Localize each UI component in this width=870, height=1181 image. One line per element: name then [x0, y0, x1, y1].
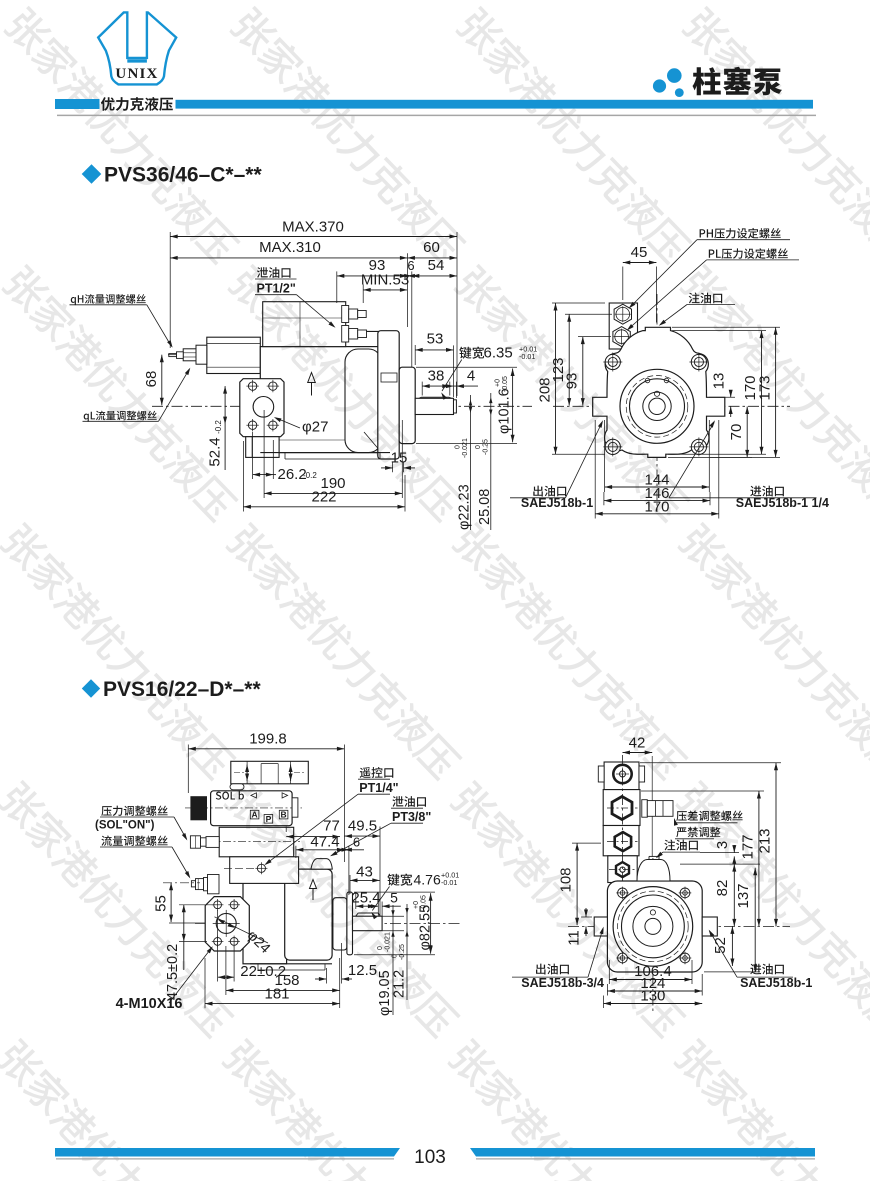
svg-text:+0: +0	[495, 379, 502, 387]
svg-text:PVS16/22–D*–**: PVS16/22–D*–**	[103, 678, 261, 701]
svg-text:70: 70	[728, 424, 745, 441]
svg-text:PT3/8": PT3/8"	[392, 810, 431, 824]
svg-text:PT1/4": PT1/4"	[359, 781, 398, 795]
svg-text:47.4: 47.4	[310, 834, 339, 851]
svg-text:-0.2: -0.2	[214, 420, 223, 434]
svg-text:82: 82	[714, 880, 731, 897]
svg-text:181: 181	[264, 986, 289, 1003]
svg-text:0: 0	[455, 445, 462, 449]
svg-text:-0.25: -0.25	[483, 439, 490, 455]
svg-text:φ22.23: φ22.23	[457, 484, 473, 530]
svg-text:103: 103	[414, 1147, 446, 1168]
svg-text:68: 68	[143, 371, 160, 388]
svg-text:MIN.53: MIN.53	[361, 272, 409, 289]
svg-text:-0.2: -0.2	[303, 471, 317, 480]
svg-text:137: 137	[735, 883, 752, 908]
svg-text:PVS36/46–C*–**: PVS36/46–C*–**	[104, 164, 262, 187]
svg-text:199.8: 199.8	[249, 731, 287, 748]
svg-text:(SOL"ON"): (SOL"ON")	[95, 820, 155, 832]
svg-text:55: 55	[153, 895, 170, 912]
svg-text:-0.01: -0.01	[441, 878, 457, 887]
svg-text:53: 53	[427, 331, 444, 348]
svg-text:25.08: 25.08	[477, 489, 493, 525]
svg-text:13: 13	[711, 373, 728, 390]
svg-text:UNIX: UNIX	[115, 66, 158, 82]
svg-text:MAX.370: MAX.370	[282, 219, 344, 236]
svg-text:49.5: 49.5	[348, 818, 377, 835]
svg-text:+0: +0	[413, 901, 420, 909]
svg-text:φ101.6: φ101.6	[497, 388, 513, 434]
svg-text:-0.021: -0.021	[462, 438, 469, 458]
svg-text:222: 222	[311, 489, 336, 506]
svg-text:SAEJ518b-1: SAEJ518b-1	[740, 976, 812, 990]
svg-text:0: 0	[475, 445, 482, 449]
svg-text:φ27: φ27	[302, 419, 328, 436]
svg-text:SAEJ518b-3/4: SAEJ518b-3/4	[521, 976, 604, 990]
svg-text:-0.05: -0.05	[421, 895, 428, 911]
svg-text:B: B	[281, 810, 287, 820]
svg-text:4: 4	[467, 368, 475, 385]
svg-text:52.4: 52.4	[207, 437, 224, 466]
svg-text:38: 38	[428, 368, 445, 385]
svg-text:MAX.310: MAX.310	[259, 239, 321, 256]
svg-text:-0.05: -0.05	[502, 376, 509, 392]
svg-text:45: 45	[631, 244, 648, 261]
svg-text:4.76: 4.76	[414, 872, 441, 888]
svg-text:43: 43	[356, 863, 373, 880]
svg-text:77: 77	[323, 818, 340, 835]
